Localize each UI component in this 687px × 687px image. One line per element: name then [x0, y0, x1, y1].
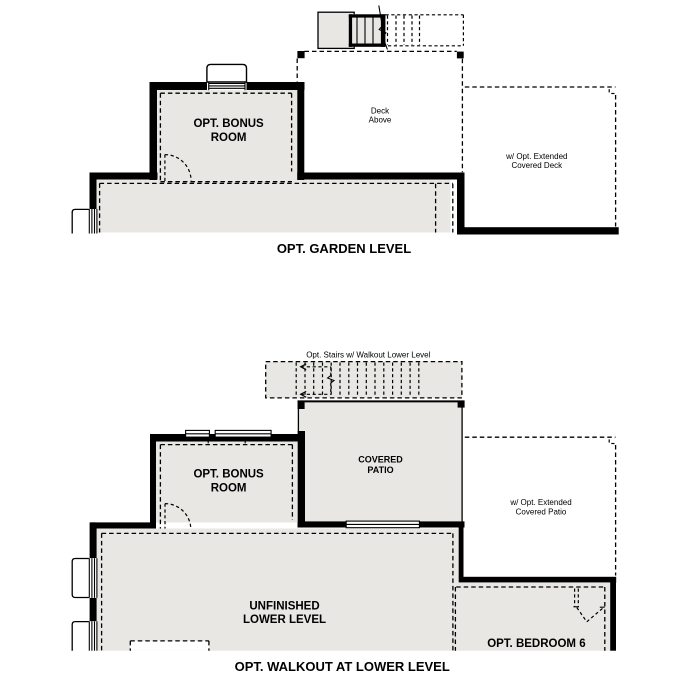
- svg-text:Covered Patio: Covered Patio: [516, 508, 567, 517]
- svg-text:OPT. BEDROOM 6: OPT. BEDROOM 6: [487, 638, 585, 650]
- svg-text:Opt. Stairs w/ Walkout Lower L: Opt. Stairs w/ Walkout Lower Level: [306, 350, 430, 359]
- svg-text:Covered Deck: Covered Deck: [511, 161, 563, 170]
- svg-text:w/ Opt. Extended: w/ Opt. Extended: [509, 498, 571, 507]
- svg-text:Above: Above: [369, 115, 392, 124]
- svg-text:ROOM: ROOM: [211, 483, 247, 495]
- svg-text:w/ Opt. Extended: w/ Opt. Extended: [505, 152, 567, 161]
- svg-text:OPT. BONUS: OPT. BONUS: [193, 469, 264, 481]
- svg-text:ROOM: ROOM: [211, 132, 247, 144]
- svg-text:Deck: Deck: [371, 106, 390, 115]
- svg-text:OPT. WALKOUT AT LOWER LEVEL: OPT. WALKOUT AT LOWER LEVEL: [235, 659, 450, 674]
- svg-text:UNFINISHED: UNFINISHED: [249, 601, 319, 613]
- svg-text:COVERED: COVERED: [358, 454, 403, 464]
- svg-text:OPT. GARDEN LEVEL: OPT. GARDEN LEVEL: [277, 241, 411, 256]
- svg-text:LOWER LEVEL: LOWER LEVEL: [243, 614, 326, 626]
- svg-text:OPT. BONUS: OPT. BONUS: [193, 118, 264, 130]
- svg-text:PATIO: PATIO: [367, 465, 393, 475]
